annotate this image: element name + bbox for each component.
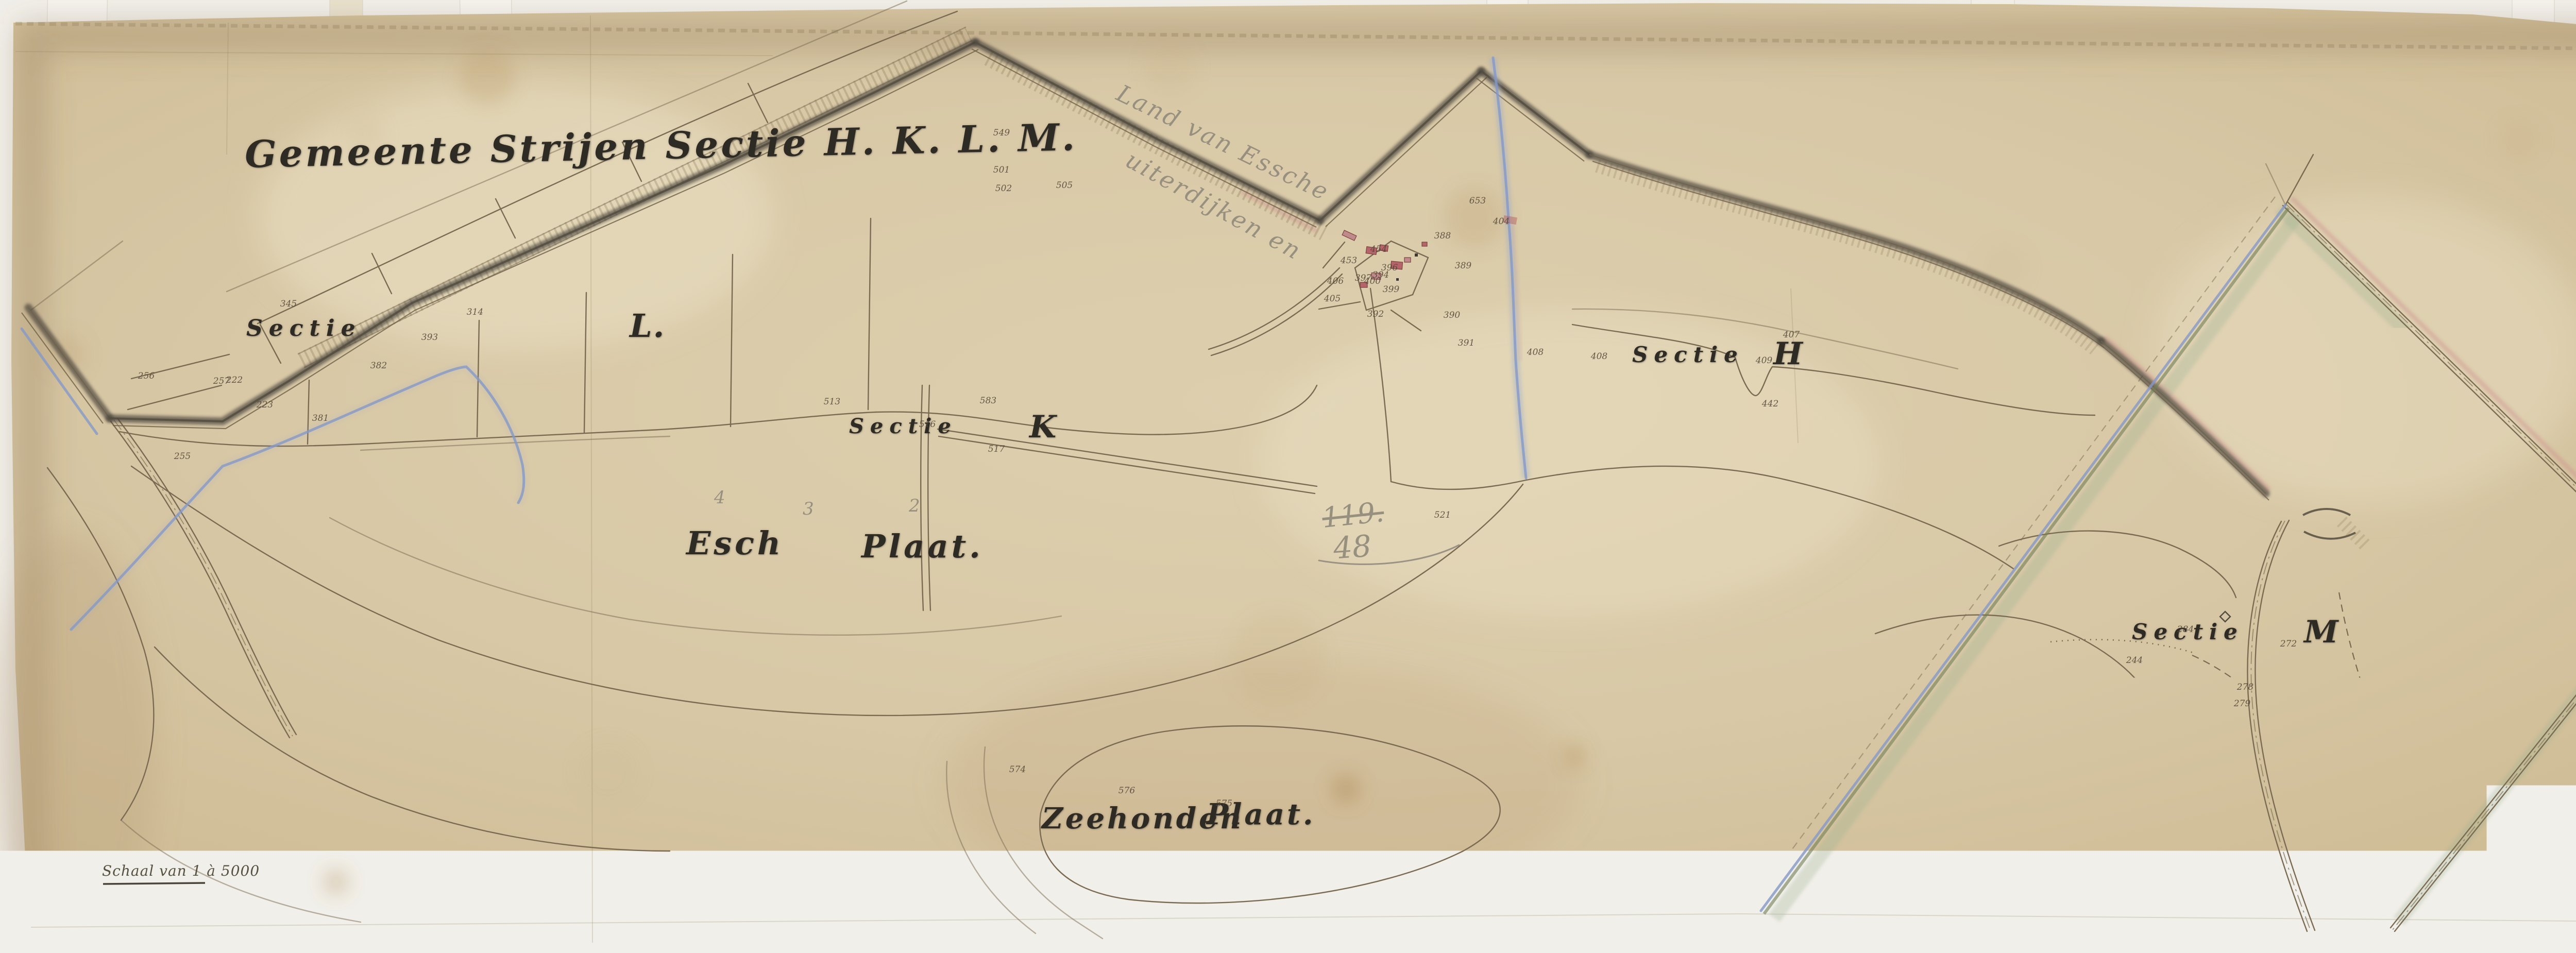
parcel-number: 284 (2177, 624, 2194, 635)
parcel-number: 408 (1527, 347, 1544, 358)
place-label-esch: Esch (686, 524, 784, 562)
parcel-number: 382 (370, 361, 387, 371)
parcel-number: 257 (213, 376, 230, 386)
parcel-number: 453 (1341, 256, 1357, 266)
parcel-number: 244 (2126, 655, 2143, 666)
parcel-number: 399 (1383, 284, 1399, 295)
section-label-l: Sectie (246, 315, 362, 342)
parcel-number: 393 (421, 332, 438, 343)
parcel-number: 505 (1056, 180, 1073, 191)
parcel-number: 574 (1009, 764, 1026, 775)
parcel-number: 404 (1493, 216, 1510, 227)
section-label-k: Sectie (849, 414, 957, 438)
section-letter-m: M (2304, 614, 2339, 650)
pencil-digit-2: 2 (909, 496, 920, 516)
parcel-number: 389 (1455, 261, 1471, 271)
scanned-cadastral-map: Gemeente Strijen Sectie H. K. L. M. Sect… (0, 0, 2576, 953)
parcel-number: 575 (1216, 798, 1232, 809)
parcel-number: 442 (1762, 399, 1778, 409)
parcel-number: 390 (1444, 310, 1460, 320)
parcel-number: 388 (1434, 231, 1451, 241)
parcel-number: 516 (919, 419, 936, 430)
parcel-number: 400 (1364, 276, 1381, 286)
parcel-number: 391 (1458, 338, 1475, 348)
section-letter-h: H (1773, 336, 1804, 372)
parcel-number: 409 (1756, 355, 1772, 366)
parcel-number: 501 (993, 165, 1010, 175)
parcel-number: 521 (1434, 510, 1451, 520)
section-letter-k: K (1029, 409, 1057, 445)
parcel-number: 406 (1327, 276, 1344, 286)
parcel-number: 345 (280, 299, 297, 309)
pencil-crossed-number: 119. (1320, 496, 1385, 534)
parcel-number: 407 (1783, 330, 1800, 340)
parcel-number: 223 (257, 400, 273, 410)
parcel-number: 653 (1469, 196, 1486, 206)
section-letter-l: L. (630, 307, 665, 345)
parcel-number: 513 (824, 397, 840, 407)
parcel-number: 583 (980, 396, 996, 406)
parcel-number: 272 (2280, 639, 2297, 649)
section-label-h: Sectie (1632, 342, 1744, 367)
parcel-number: 576 (1118, 786, 1135, 796)
parcel-number: 256 (138, 371, 155, 381)
parcel-number: 314 (467, 307, 483, 317)
parcel-number: 549 (993, 128, 1010, 138)
parcel-number: 408 (1591, 351, 1607, 362)
pencil-digit-3: 3 (803, 499, 814, 519)
pencil-digit-4: 4 (714, 487, 725, 508)
parcel-number: 381 (312, 413, 329, 423)
pencil-number-below: 48 (1332, 529, 1372, 566)
parcel-number: 405 (1324, 294, 1341, 304)
parcel-number: 502 (995, 183, 1012, 194)
scale-note: Schaal van 1 à 5000 (102, 862, 260, 879)
parcel-number: 278 (2237, 682, 2253, 692)
parcel-number: 279 (2234, 699, 2250, 709)
parcel-number: 255 (174, 451, 191, 462)
parcel-number: 454 (1370, 244, 1387, 254)
parcel-number: 392 (1367, 309, 1384, 319)
place-label-esch-plaat: Plaat. (861, 527, 984, 565)
parcel-number: 517 (988, 444, 1005, 454)
